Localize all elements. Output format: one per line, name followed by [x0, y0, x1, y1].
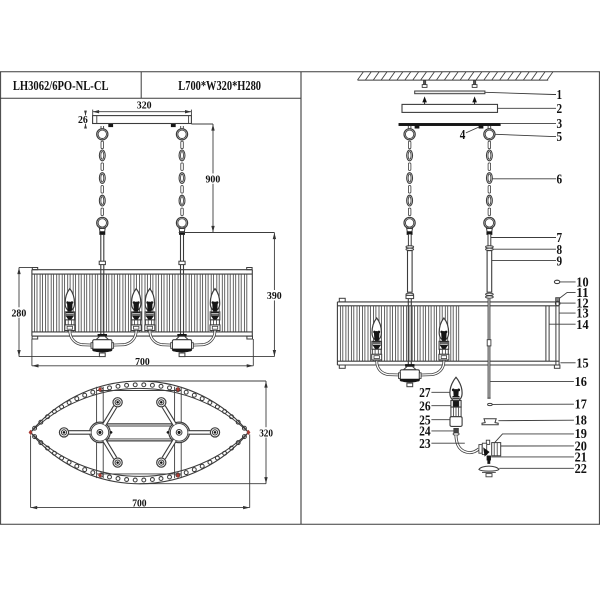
svg-text:5: 5 — [557, 129, 563, 144]
svg-text:17: 17 — [575, 397, 587, 412]
svg-text:16: 16 — [575, 374, 587, 389]
svg-text:9: 9 — [557, 253, 563, 268]
svg-text:L700*W320*H280: L700*W320*H280 — [178, 78, 261, 93]
svg-text:22: 22 — [575, 461, 587, 476]
svg-text:280: 280 — [12, 307, 27, 319]
svg-text:2: 2 — [557, 101, 563, 116]
svg-text:14: 14 — [576, 317, 588, 332]
svg-text:26: 26 — [419, 398, 431, 413]
svg-text:4: 4 — [460, 127, 466, 142]
svg-text:6: 6 — [557, 172, 563, 187]
svg-text:320: 320 — [259, 427, 273, 439]
svg-text:700: 700 — [132, 498, 146, 510]
svg-text:26: 26 — [78, 114, 88, 126]
svg-text:23: 23 — [419, 436, 431, 451]
svg-text:390: 390 — [267, 290, 282, 302]
svg-text:700: 700 — [135, 356, 150, 368]
svg-text:320: 320 — [137, 100, 152, 112]
svg-text:15: 15 — [576, 356, 588, 371]
svg-text:LH3062/6PO-NL-CL: LH3062/6PO-NL-CL — [13, 78, 109, 93]
svg-text:900: 900 — [206, 174, 221, 186]
